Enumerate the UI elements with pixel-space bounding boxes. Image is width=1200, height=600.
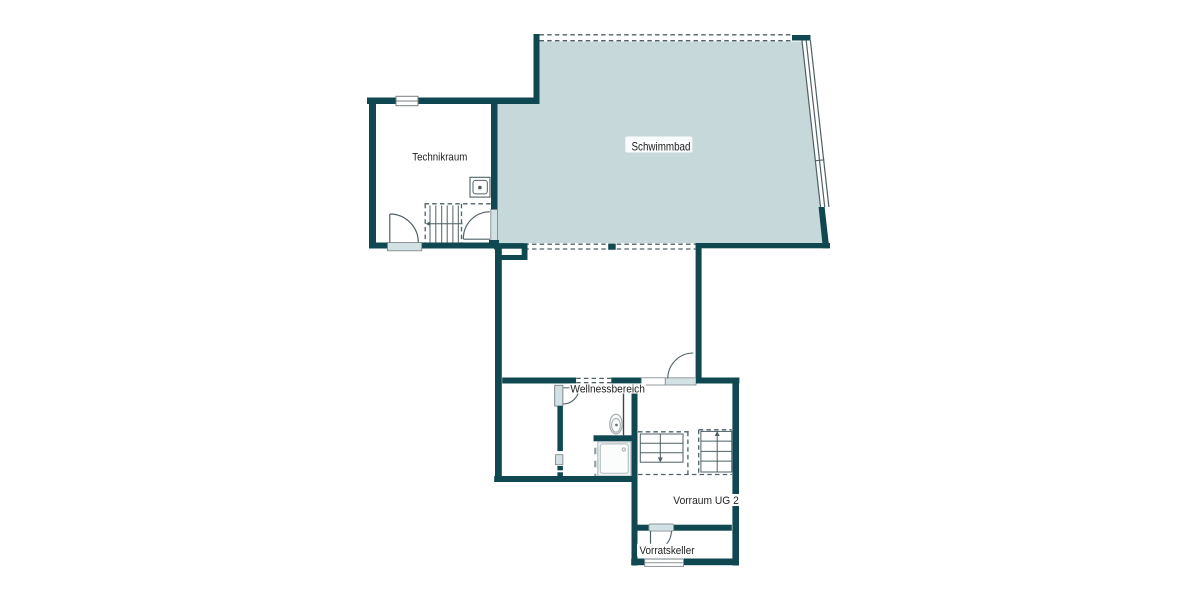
svg-text:Technikraum: Technikraum (412, 152, 467, 164)
svg-text:Schwimmbad: Schwimmbad (632, 139, 691, 153)
svg-text:Vorraum UG 2: Vorraum UG 2 (673, 495, 739, 507)
svg-text:Wellnessbereich: Wellnessbereich (570, 383, 645, 395)
svg-text:Vorratskeller: Vorratskeller (640, 545, 695, 557)
